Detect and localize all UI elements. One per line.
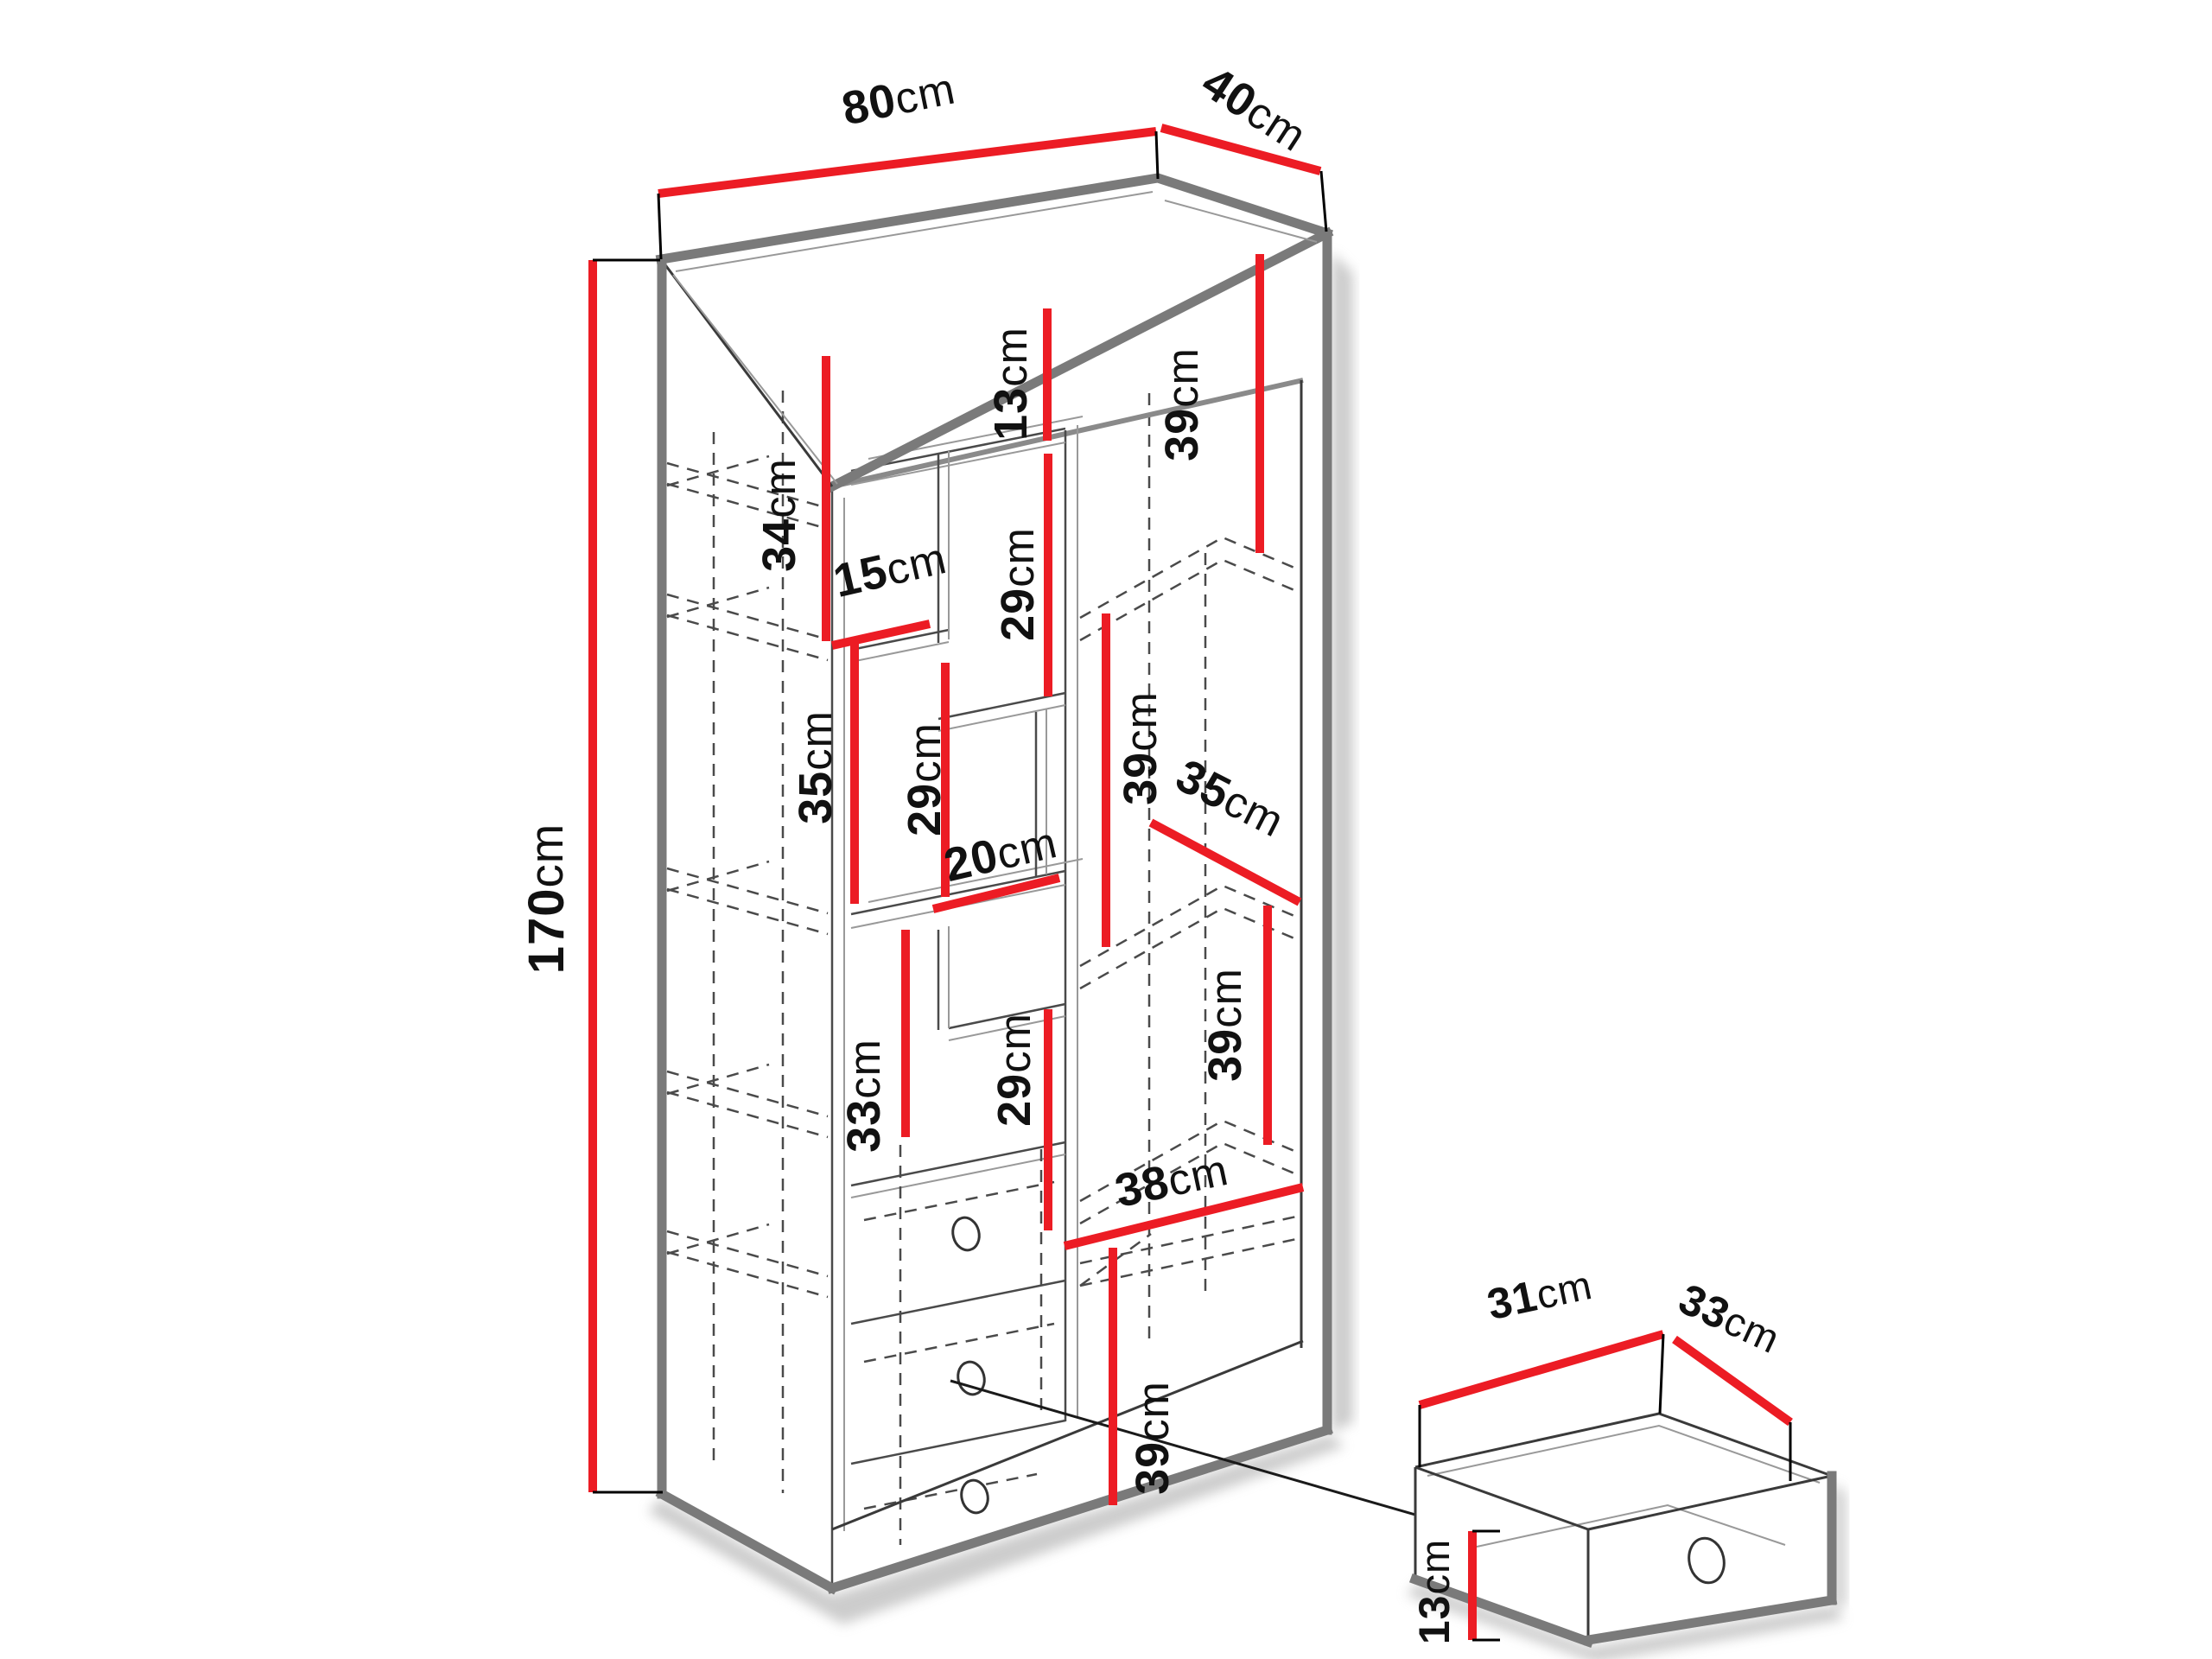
label-29cm-top: 29cm: [992, 527, 1044, 641]
label-drawer-13cm: 13cm: [1410, 1539, 1459, 1644]
label-35cm-left: 35cm: [790, 710, 842, 824]
cabinet-right-shadow: [1332, 252, 1353, 1433]
label-39cm-top-right: 39cm: [1156, 347, 1208, 461]
cabinet-left-face: [661, 259, 832, 1588]
dim-line-drawer-33cm: [1675, 1339, 1790, 1422]
cabinet-dimension-diagram: 80cm 40cm 170cm 34cm 13cm 29cm 39cm 15cm…: [0, 0, 2212, 1659]
label-29cm-bottom: 29cm: [988, 1013, 1040, 1127]
label-width-80cm: 80cm: [837, 61, 959, 135]
dim-line-width-80cm: [658, 131, 1156, 194]
dimension-diagram-page: 80cm 40cm 170cm 34cm 13cm 29cm 39cm 15cm…: [0, 0, 2212, 1659]
label-34cm: 34cm: [753, 458, 805, 572]
dim-line-drawer-31cm: [1420, 1334, 1663, 1405]
label-39cm-right-mid: 39cm: [1115, 691, 1166, 805]
label-39cm-right-lower: 39cm: [1199, 968, 1251, 1082]
label-drawer-31cm: 31cm: [1483, 1260, 1596, 1329]
label-height-170cm: 170cm: [518, 823, 575, 974]
label-39cm-bottom: 39cm: [1127, 1381, 1179, 1495]
label-13cm: 13cm: [985, 327, 1037, 441]
label-29cm-mid: 29cm: [899, 722, 950, 836]
label-33cm: 33cm: [838, 1039, 890, 1153]
